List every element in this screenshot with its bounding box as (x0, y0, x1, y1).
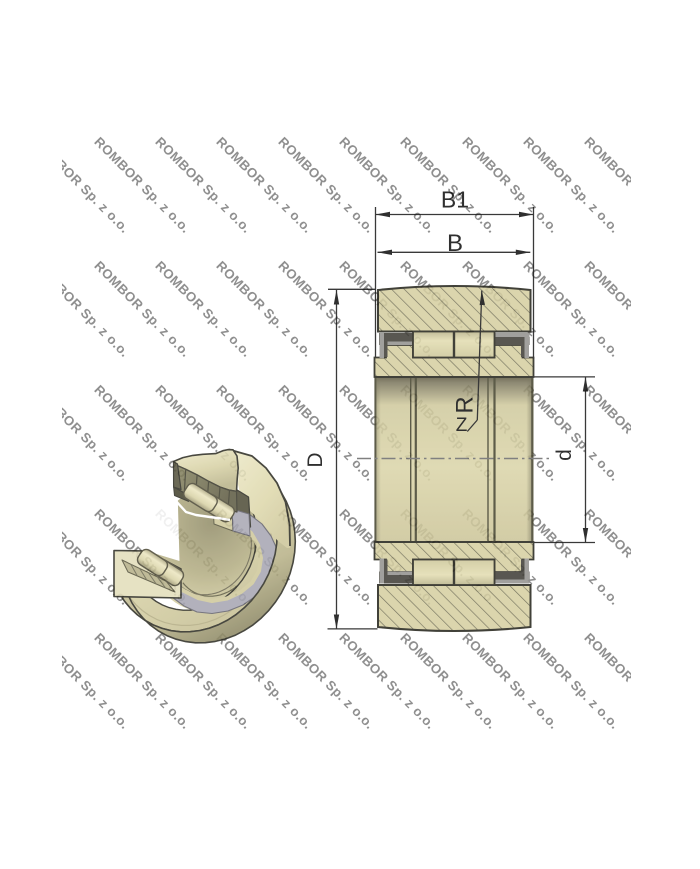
svg-text:Z: Z (456, 415, 468, 436)
svg-text:D: D (304, 452, 327, 467)
svg-text:d: d (553, 449, 576, 461)
svg-text:B1: B1 (441, 187, 469, 213)
svg-text:R: R (452, 396, 479, 413)
svg-text:B: B (447, 230, 463, 257)
